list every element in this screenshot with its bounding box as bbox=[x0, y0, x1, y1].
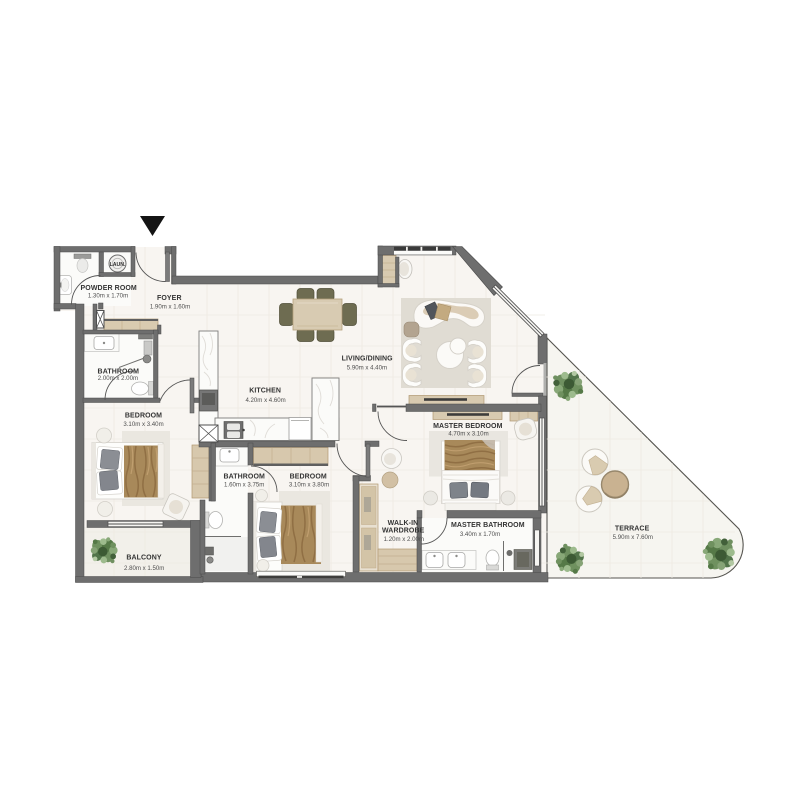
svg-text:2.00m x 2.00m: 2.00m x 2.00m bbox=[98, 375, 138, 382]
svg-text:WARDROBE: WARDROBE bbox=[382, 527, 425, 534]
svg-text:TERRACE: TERRACE bbox=[615, 525, 650, 532]
svg-text:FOYER: FOYER bbox=[157, 295, 182, 302]
svg-text:1.90m x 1.60m: 1.90m x 1.60m bbox=[150, 303, 190, 310]
svg-text:BEDROOM: BEDROOM bbox=[125, 413, 162, 420]
svg-text:5.90m x 4.40m: 5.90m x 4.40m bbox=[347, 364, 387, 371]
svg-text:4.70m x 3.10m: 4.70m x 3.10m bbox=[448, 430, 488, 437]
svg-text:MASTER BATHROOM: MASTER BATHROOM bbox=[451, 522, 525, 529]
svg-text:BALCONY: BALCONY bbox=[126, 555, 162, 562]
svg-text:1.60m x 3.75m: 1.60m x 3.75m bbox=[224, 482, 264, 489]
svg-text:3.40m x 1.70m: 3.40m x 1.70m bbox=[460, 531, 500, 538]
svg-text:LAUN.: LAUN. bbox=[110, 262, 126, 268]
svg-text:BEDROOM: BEDROOM bbox=[290, 474, 327, 481]
svg-text:WALK-IN: WALK-IN bbox=[388, 520, 419, 527]
svg-text:BATHROOM: BATHROOM bbox=[223, 474, 265, 481]
svg-text:2.80m x 1.50m: 2.80m x 1.50m bbox=[124, 565, 164, 572]
svg-text:4.20m x 4.60m: 4.20m x 4.60m bbox=[245, 397, 285, 404]
svg-text:KITCHEN: KITCHEN bbox=[249, 387, 281, 394]
svg-text:5.90m x 7.60m: 5.90m x 7.60m bbox=[613, 534, 653, 541]
svg-text:MASTER BEDROOM: MASTER BEDROOM bbox=[433, 423, 503, 430]
svg-text:3.10m x 3.40m: 3.10m x 3.40m bbox=[123, 421, 163, 428]
svg-text:1.20m x 2.00m: 1.20m x 2.00m bbox=[384, 536, 424, 543]
svg-text:POWDER ROOM: POWDER ROOM bbox=[81, 285, 137, 292]
svg-text:3.10m x 3.80m: 3.10m x 3.80m bbox=[289, 482, 329, 489]
svg-text:1.30m x 1.70m: 1.30m x 1.70m bbox=[88, 292, 128, 299]
svg-text:LIVING/DINING: LIVING/DINING bbox=[342, 356, 394, 363]
